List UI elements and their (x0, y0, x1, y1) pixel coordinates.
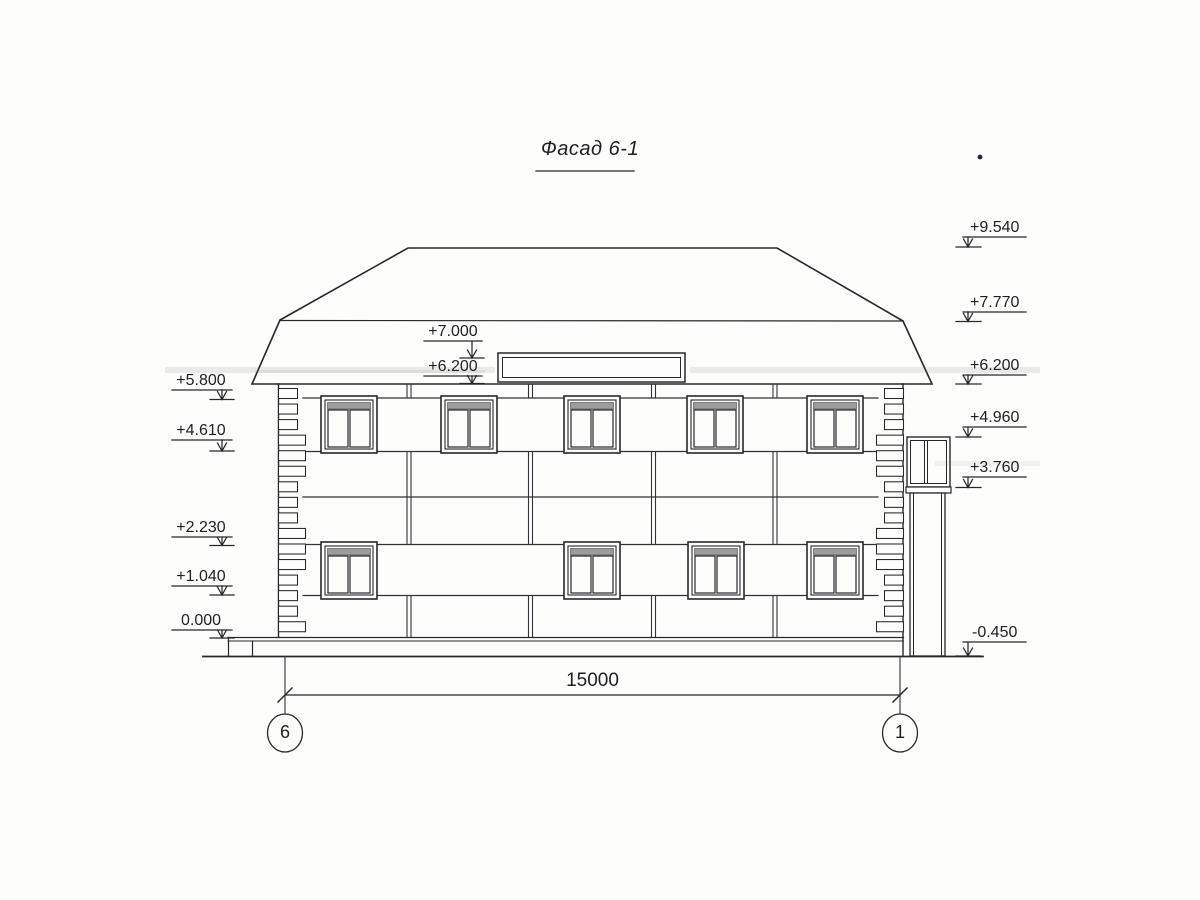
elevation-label-right-0: +9.540 (970, 219, 1019, 237)
elevation-label-left-3: +1.040 (170, 568, 232, 586)
window (321, 396, 377, 453)
elevation-label-right-4: +3.760 (970, 459, 1019, 477)
window (564, 542, 620, 599)
elevation-label-left-4: 0.000 (170, 612, 232, 630)
elevation-label-left-1: +4.610 (170, 422, 232, 440)
window (321, 542, 377, 599)
elevation-label-right-2: +6.200 (970, 357, 1019, 375)
roof-break-line (280, 321, 903, 322)
axis-bubble-label-6: 6 (265, 723, 305, 741)
elevation-label-right-5: -0.450 (972, 624, 1017, 642)
window (564, 396, 620, 453)
sign-board (498, 353, 685, 382)
dimension-label: 15000 (530, 672, 655, 690)
drawing-sheet: Фасад 6-1 +9.540 +7.770 +6.200 +4.960 +3… (0, 0, 1200, 900)
plinth (228, 638, 904, 657)
elevation-label-right-3: +4.960 (970, 409, 1019, 427)
window (441, 396, 497, 453)
elevation-label-middle-0: +7.000 (423, 323, 483, 341)
elevation-linework (0, 0, 1200, 900)
drawing-title: Фасад 6-1 (500, 140, 680, 158)
axis-bubble-label-1: 1 (880, 723, 920, 741)
window (807, 542, 863, 599)
elevation-label-left-2: +2.230 (170, 519, 232, 537)
window (688, 542, 744, 599)
elevation-label-left-0: +5.800 (170, 372, 232, 390)
elevation-label-middle-1: +6.200 (423, 358, 483, 376)
elevation-label-right-1: +7.770 (970, 294, 1019, 312)
window (807, 396, 863, 453)
window (687, 396, 743, 453)
downpipe-shaft (910, 493, 945, 656)
ink-dot (978, 155, 983, 160)
